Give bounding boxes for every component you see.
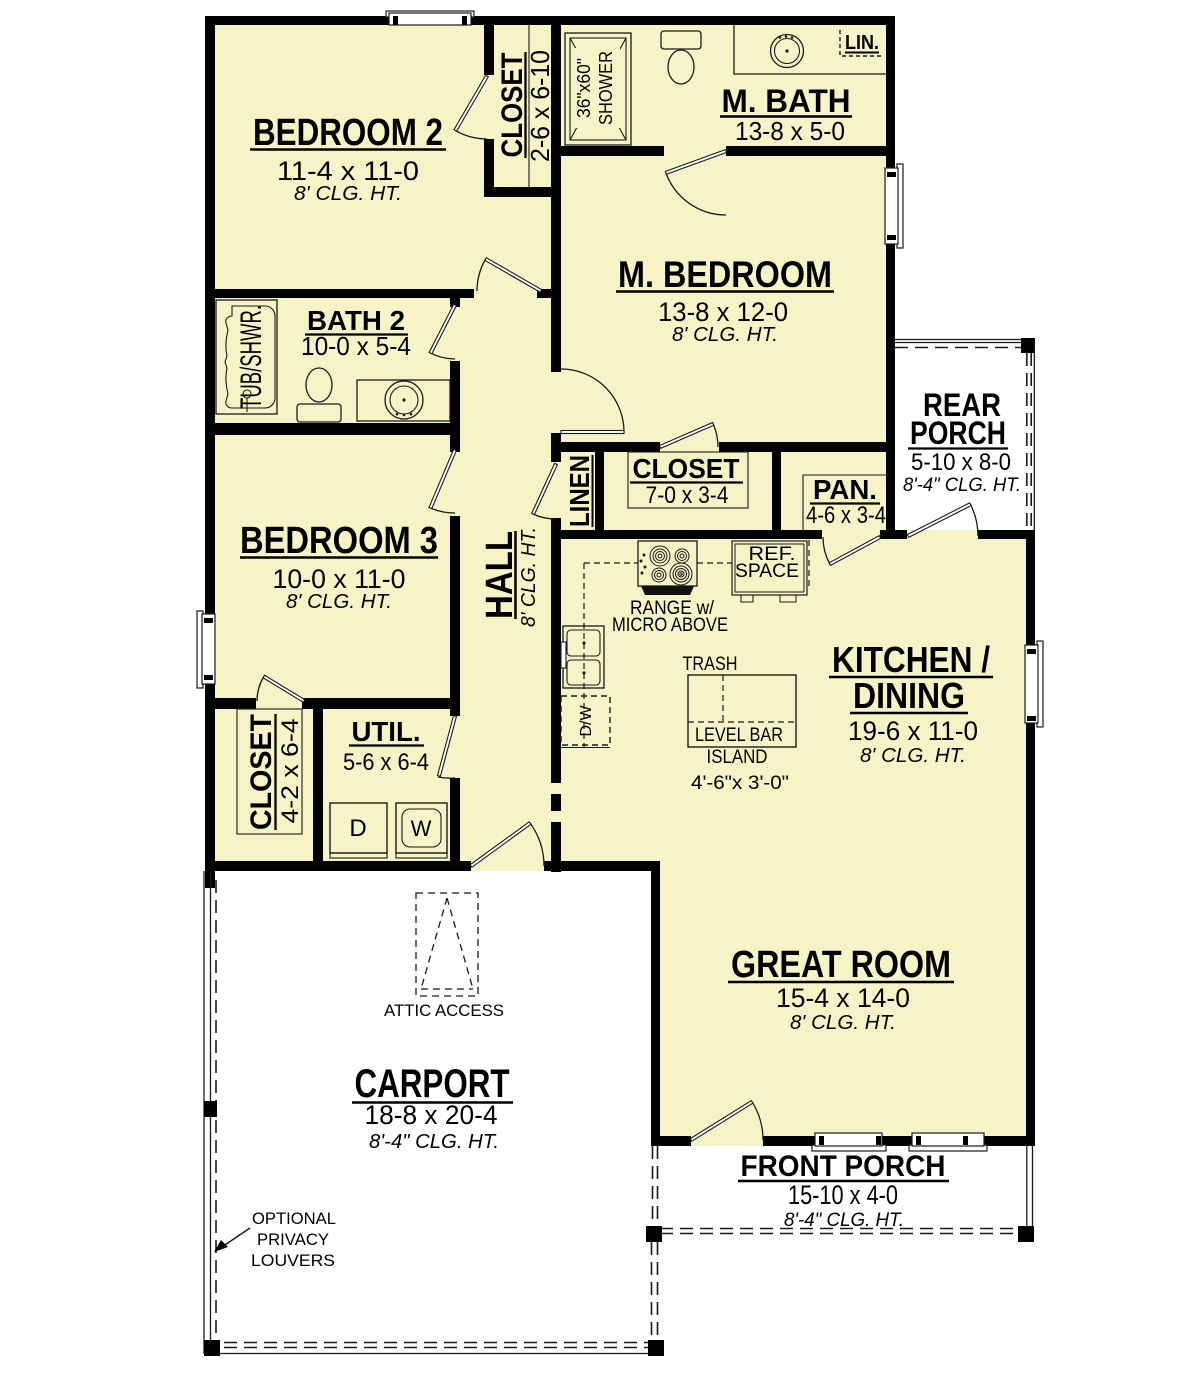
svg-text:8'-4" CLG. HT.: 8'-4" CLG. HT.	[903, 475, 1021, 496]
svg-text:MICRO ABOVE: MICRO ABOVE	[612, 615, 728, 636]
svg-text:TUB/SHWR.: TUB/SHWR.	[235, 305, 268, 409]
svg-text:ISLAND: ISLAND	[707, 747, 768, 768]
svg-text:FRONT PORCH: FRONT PORCH	[741, 1150, 946, 1183]
svg-text:36"x60": 36"x60"	[574, 58, 594, 118]
svg-text:11-4 x 11-0: 11-4 x 11-0	[277, 156, 419, 186]
svg-text:8'-4" CLG. HT.: 8'-4" CLG. HT.	[369, 1131, 499, 1153]
svg-text:8' CLG. HT.: 8' CLG. HT.	[790, 1012, 896, 1034]
svg-text:BEDROOM 2: BEDROOM 2	[253, 112, 443, 154]
svg-text:PAN.: PAN.	[813, 474, 877, 505]
svg-text:8' CLG. HT.: 8' CLG. HT.	[286, 591, 392, 613]
svg-text:DINING: DINING	[853, 675, 965, 716]
svg-text:8' CLG. HT.: 8' CLG. HT.	[860, 745, 966, 767]
svg-text:5-6 x 6-4: 5-6 x 6-4	[343, 749, 429, 776]
svg-text:4-6 x 3-4: 4-6 x 3-4	[806, 502, 886, 529]
svg-text:LOUVERS: LOUVERS	[251, 1251, 335, 1270]
svg-text:15-10 x 4-0: 15-10 x 4-0	[788, 1180, 898, 1210]
svg-text:GREAT ROOM: GREAT ROOM	[731, 944, 951, 986]
svg-text:LEVEL BAR: LEVEL BAR	[695, 725, 783, 746]
svg-text:TRASH: TRASH	[683, 654, 738, 675]
svg-text:M. BEDROOM: M. BEDROOM	[618, 254, 832, 295]
svg-text:5-10 x 8-0: 5-10 x 8-0	[911, 449, 1011, 476]
svg-text:CLOSET: CLOSET	[245, 714, 278, 830]
svg-text:M. BATH: M. BATH	[722, 83, 851, 119]
svg-text:2-6 x 6-10: 2-6 x 6-10	[525, 50, 555, 162]
svg-text:13-8 x 12-0: 13-8 x 12-0	[658, 297, 788, 327]
svg-text:8'-4" CLG. HT.: 8'-4" CLG. HT.	[784, 1210, 904, 1231]
svg-text:18-8 x 20-4: 18-8 x 20-4	[365, 1100, 498, 1130]
svg-text:4'-6"x 3'-0": 4'-6"x 3'-0"	[691, 773, 789, 794]
svg-text:15-4 x 14-0: 15-4 x 14-0	[776, 983, 910, 1013]
svg-text:8' CLG. HT.: 8' CLG. HT.	[518, 527, 540, 627]
svg-text:10-0 x 5-4: 10-0 x 5-4	[301, 331, 411, 361]
svg-text:D: D	[349, 815, 366, 842]
svg-text:W: W	[411, 816, 432, 841]
svg-text:LIN.: LIN.	[845, 32, 879, 54]
svg-text:KITCHEN /: KITCHEN /	[832, 639, 990, 680]
svg-text:LINEN: LINEN	[564, 455, 595, 527]
svg-text:ATTIC ACCESS: ATTIC ACCESS	[384, 1001, 504, 1020]
svg-text:OPTIONAL: OPTIONAL	[252, 1209, 336, 1228]
svg-text:8' CLG. HT.: 8' CLG. HT.	[294, 183, 402, 205]
svg-text:BEDROOM 3: BEDROOM 3	[240, 520, 438, 562]
svg-text:D/W: D/W	[578, 705, 595, 737]
svg-text:13-8 x 5-0: 13-8 x 5-0	[735, 116, 845, 146]
svg-text:19-6 x 11-0: 19-6 x 11-0	[848, 716, 978, 746]
svg-text:7-0 x 3-4: 7-0 x 3-4	[646, 482, 729, 509]
svg-text:CLOSET: CLOSET	[633, 453, 740, 484]
svg-text:UTIL.: UTIL.	[352, 716, 421, 747]
svg-text:8' CLG. HT.: 8' CLG. HT.	[672, 324, 778, 346]
svg-text:10-0 x 11-0: 10-0 x 11-0	[273, 564, 406, 594]
svg-text:SPACE: SPACE	[735, 561, 799, 582]
svg-text:4-2 x 6-4: 4-2 x 6-4	[277, 719, 304, 824]
svg-text:SHOWER: SHOWER	[596, 51, 616, 125]
svg-text:PRIVACY: PRIVACY	[257, 1230, 329, 1249]
svg-text:PORCH: PORCH	[910, 415, 1006, 451]
